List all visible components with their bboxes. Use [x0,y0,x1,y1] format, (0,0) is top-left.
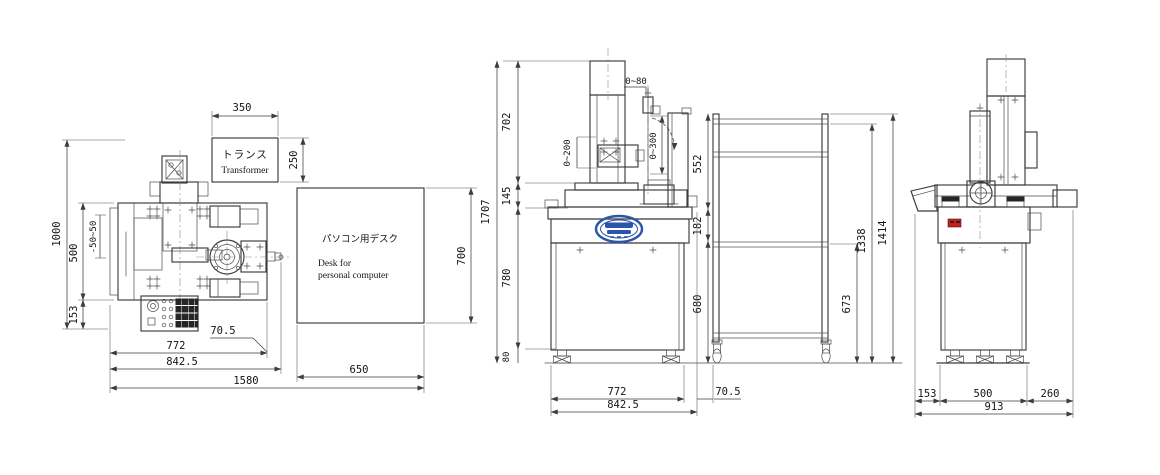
plan-view: トランス Transformer パソコン用デスク Desk for perso… [51,102,477,393]
dim-front-machine-overall-width: 842.5 [607,399,639,411]
plan-control-panel [141,296,198,331]
dim-column-height: 702 [501,113,513,132]
plan-side-protrusions [210,206,258,297]
brand-logo [596,216,642,242]
dim-front-machine-width: 772 [608,386,627,398]
dim-slide-stroke: 0~200 [563,139,573,166]
dim-arm-stroke: 0~300 [649,132,659,159]
dim-body-depth: 500 [68,244,80,263]
panel-switch [148,318,155,325]
dim-side-body-depth: 500 [974,388,993,400]
plan-rotary-unit [172,231,292,284]
plan-dimensions: 350 250 1000 500 -50~50 153 700 70.5 772… [51,102,477,393]
dim-transformer-depth: 250 [288,151,300,170]
dim-head-stroke: 0~80 [625,77,647,87]
side-machine [911,54,1077,363]
dim-frame-height: 1414 [877,220,889,245]
dim-front-overhang: 153 [918,388,937,400]
dim-desk-depth: 700 [456,247,468,266]
caster [821,340,831,363]
dim-table-travel: -50~50 [89,221,99,254]
caster [712,340,722,363]
side-view: 153 500 260 913 [911,54,1077,418]
desk-frame [712,114,831,363]
side-column [987,54,1037,185]
dim-foot-height: 80 [502,352,512,363]
panel-keypad [176,299,198,327]
transformer-label-jp: トランス [222,149,268,161]
technical-drawing-page: トランス Transformer パソコン用デスク Desk for perso… [0,0,1160,475]
dim-total-width: 1580 [233,375,258,387]
warning-label [948,219,961,227]
three-view-machine-drawing: トランス Transformer パソコン用デスク Desk for perso… [0,0,1160,475]
dim-shelf-height: 673 [841,295,853,314]
chute [911,185,937,211]
dim-frame-upper: 552 [692,155,704,174]
side-dimensions: 153 500 260 913 [915,210,1073,418]
dim-cabinet-height: 780 [501,269,513,288]
plan-column-assembly [150,150,208,303]
dim-machine-overall-width: 842.5 [166,356,198,368]
dim-machine-width: 772 [167,340,186,352]
dim-gap-to-frame: 70.5 [715,386,740,398]
desk-outline: パソコン用デスク Desk for personal computer [297,188,424,323]
dim-total-height: 1707 [480,199,492,224]
panel-knob [148,301,159,312]
front-view: 1707 702 145 780 80 0~80 0~200 0~300 552… [480,48,902,416]
dim-total-depth: 1000 [51,221,63,246]
dim-column-base-height: 145 [501,187,513,206]
dim-transformer-width: 350 [233,102,252,114]
panel-buttons [162,299,173,327]
desk-label-en1: Desk for [318,258,352,269]
front-machine [545,48,697,363]
dim-frame-lower: 680 [692,295,704,314]
dim-shaft-offset: 70.5 [210,325,235,337]
dim-frame-inner-height: 1338 [856,228,868,253]
plan-spindle-assembly [241,241,283,272]
dim-side-total-depth: 913 [985,401,1004,413]
transformer-label-en: Transformer [221,165,269,176]
desk-label-jp: パソコン用デスク [322,233,398,245]
dim-desk-width: 650 [350,364,369,376]
dim-rear-overhang: 260 [1041,388,1060,400]
hatch-lines [166,160,183,179]
dim-frame-middle: 182 [692,217,704,236]
desk-label-en2: personal computer [318,271,389,281]
dim-panel-depth: 153 [68,306,80,325]
transformer-outline: トランス Transformer [212,138,278,182]
front-column [590,48,644,183]
